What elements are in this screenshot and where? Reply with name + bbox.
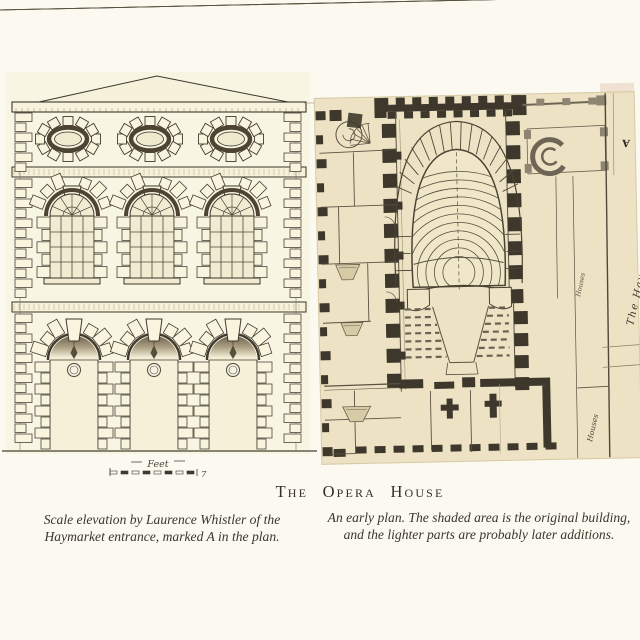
plate-title: The Opera House bbox=[80, 482, 640, 502]
caption-elevation: Scale elevation by Laurence Whistler of … bbox=[12, 511, 312, 546]
plan-marker-a: A bbox=[622, 137, 631, 148]
book-page: Feet 7 A The Haymarket Houses Houses The… bbox=[0, 0, 640, 640]
elevation-drawing bbox=[2, 72, 322, 476]
caption-plan: An early plan. The shaded area is the or… bbox=[324, 509, 634, 544]
scale-feet-label: Feet bbox=[146, 459, 168, 470]
scale-end-number: 7 bbox=[201, 470, 207, 480]
